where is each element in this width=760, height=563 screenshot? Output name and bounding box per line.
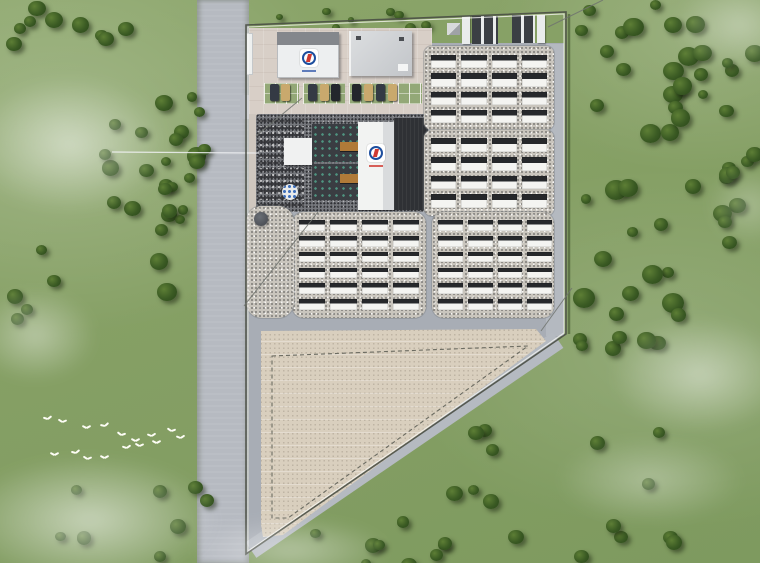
bird-icon [176,434,185,440]
bird-icon [100,454,109,459]
bird-icon [43,414,53,420]
bird-icon [58,418,67,424]
bird-icon [147,432,156,438]
bird-icon [100,421,110,428]
bird-icon [152,439,161,444]
bird-icon [122,443,132,449]
bird-icon [50,451,59,456]
site-plan-rendering [0,0,760,563]
bird-icon [71,448,81,455]
bird-icon [82,424,91,429]
bird-icon [167,426,177,432]
bird-flock [0,0,760,563]
bird-icon [117,430,127,436]
bird-icon [83,455,92,461]
bird-icon [135,442,144,448]
